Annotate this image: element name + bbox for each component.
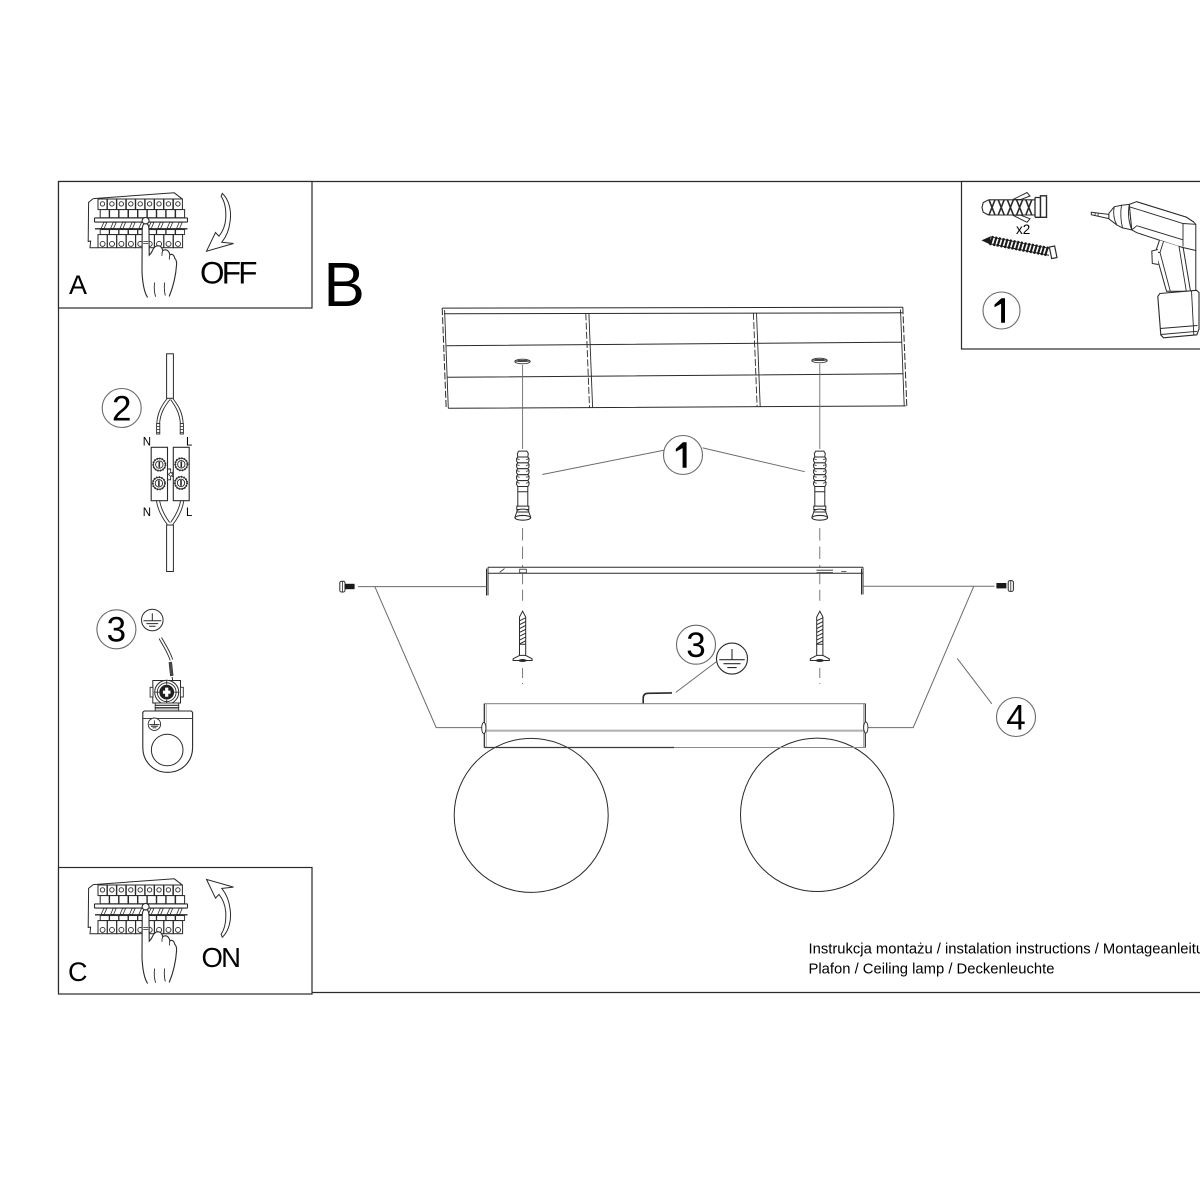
svg-text:Instrukcja montażu / instalati: Instrukcja montażu / instalation instruc… [809, 942, 1200, 958]
svg-text:N: N [143, 437, 151, 449]
svg-text:Plafon / Ceiling lamp / Decken: Plafon / Ceiling lamp / Deckenleuchte [809, 962, 1055, 978]
svg-text:OFF: OFF [200, 255, 258, 291]
svg-text:3: 3 [686, 626, 705, 665]
svg-text:A: A [69, 270, 87, 300]
svg-text:3: 3 [107, 611, 126, 650]
svg-text:x2: x2 [1016, 222, 1030, 237]
svg-text:L: L [186, 437, 193, 449]
svg-text:2: 2 [112, 389, 131, 428]
svg-text:4: 4 [1006, 698, 1025, 737]
svg-text:B: B [324, 251, 365, 320]
svg-text:C: C [68, 957, 88, 987]
svg-text:ON: ON [202, 942, 242, 973]
svg-text:L: L [186, 507, 193, 519]
svg-text:N: N [143, 507, 151, 519]
